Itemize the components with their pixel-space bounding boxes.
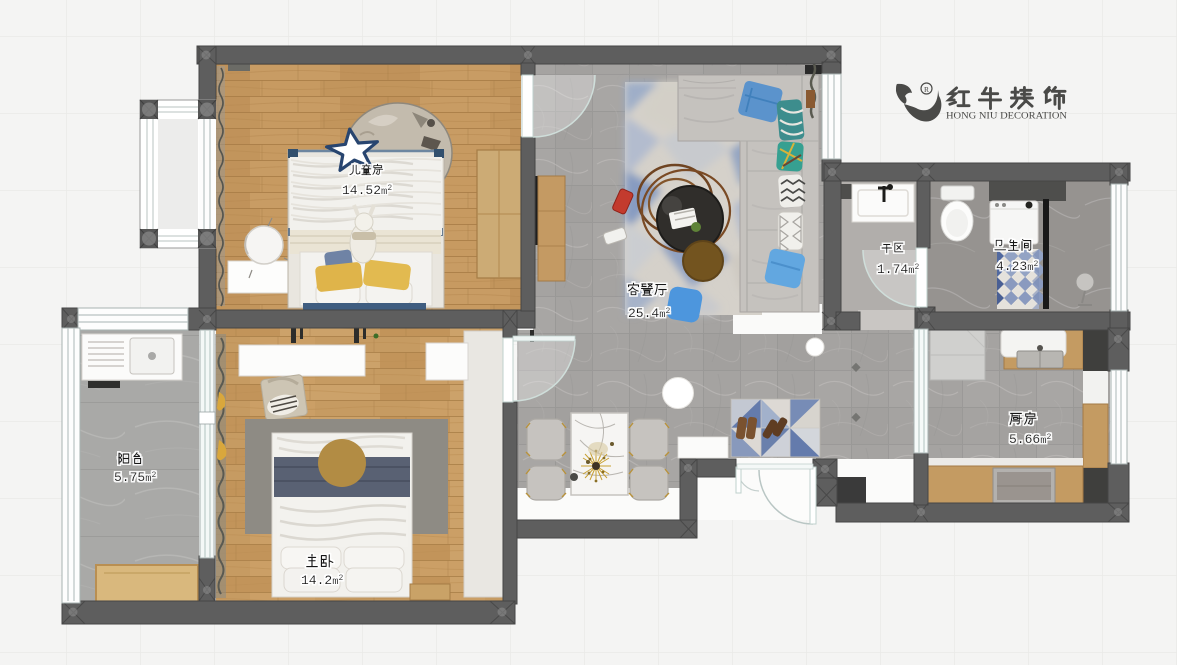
- svg-text:14.52m2: 14.52m2: [342, 183, 392, 198]
- svg-text:5.75m2: 5.75m2: [114, 470, 157, 485]
- svg-text:5.66m2: 5.66m2: [1009, 432, 1052, 447]
- svg-text:25.4m2: 25.4m2: [628, 306, 671, 321]
- svg-text:4.23m2: 4.23m2: [996, 259, 1039, 274]
- svg-text:HONG NIU DECORATION: HONG NIU DECORATION: [946, 111, 1068, 121]
- svg-text:14.2m2: 14.2m2: [301, 573, 344, 588]
- svg-text:R: R: [924, 85, 929, 94]
- svg-text:1.74m2: 1.74m2: [877, 262, 920, 277]
